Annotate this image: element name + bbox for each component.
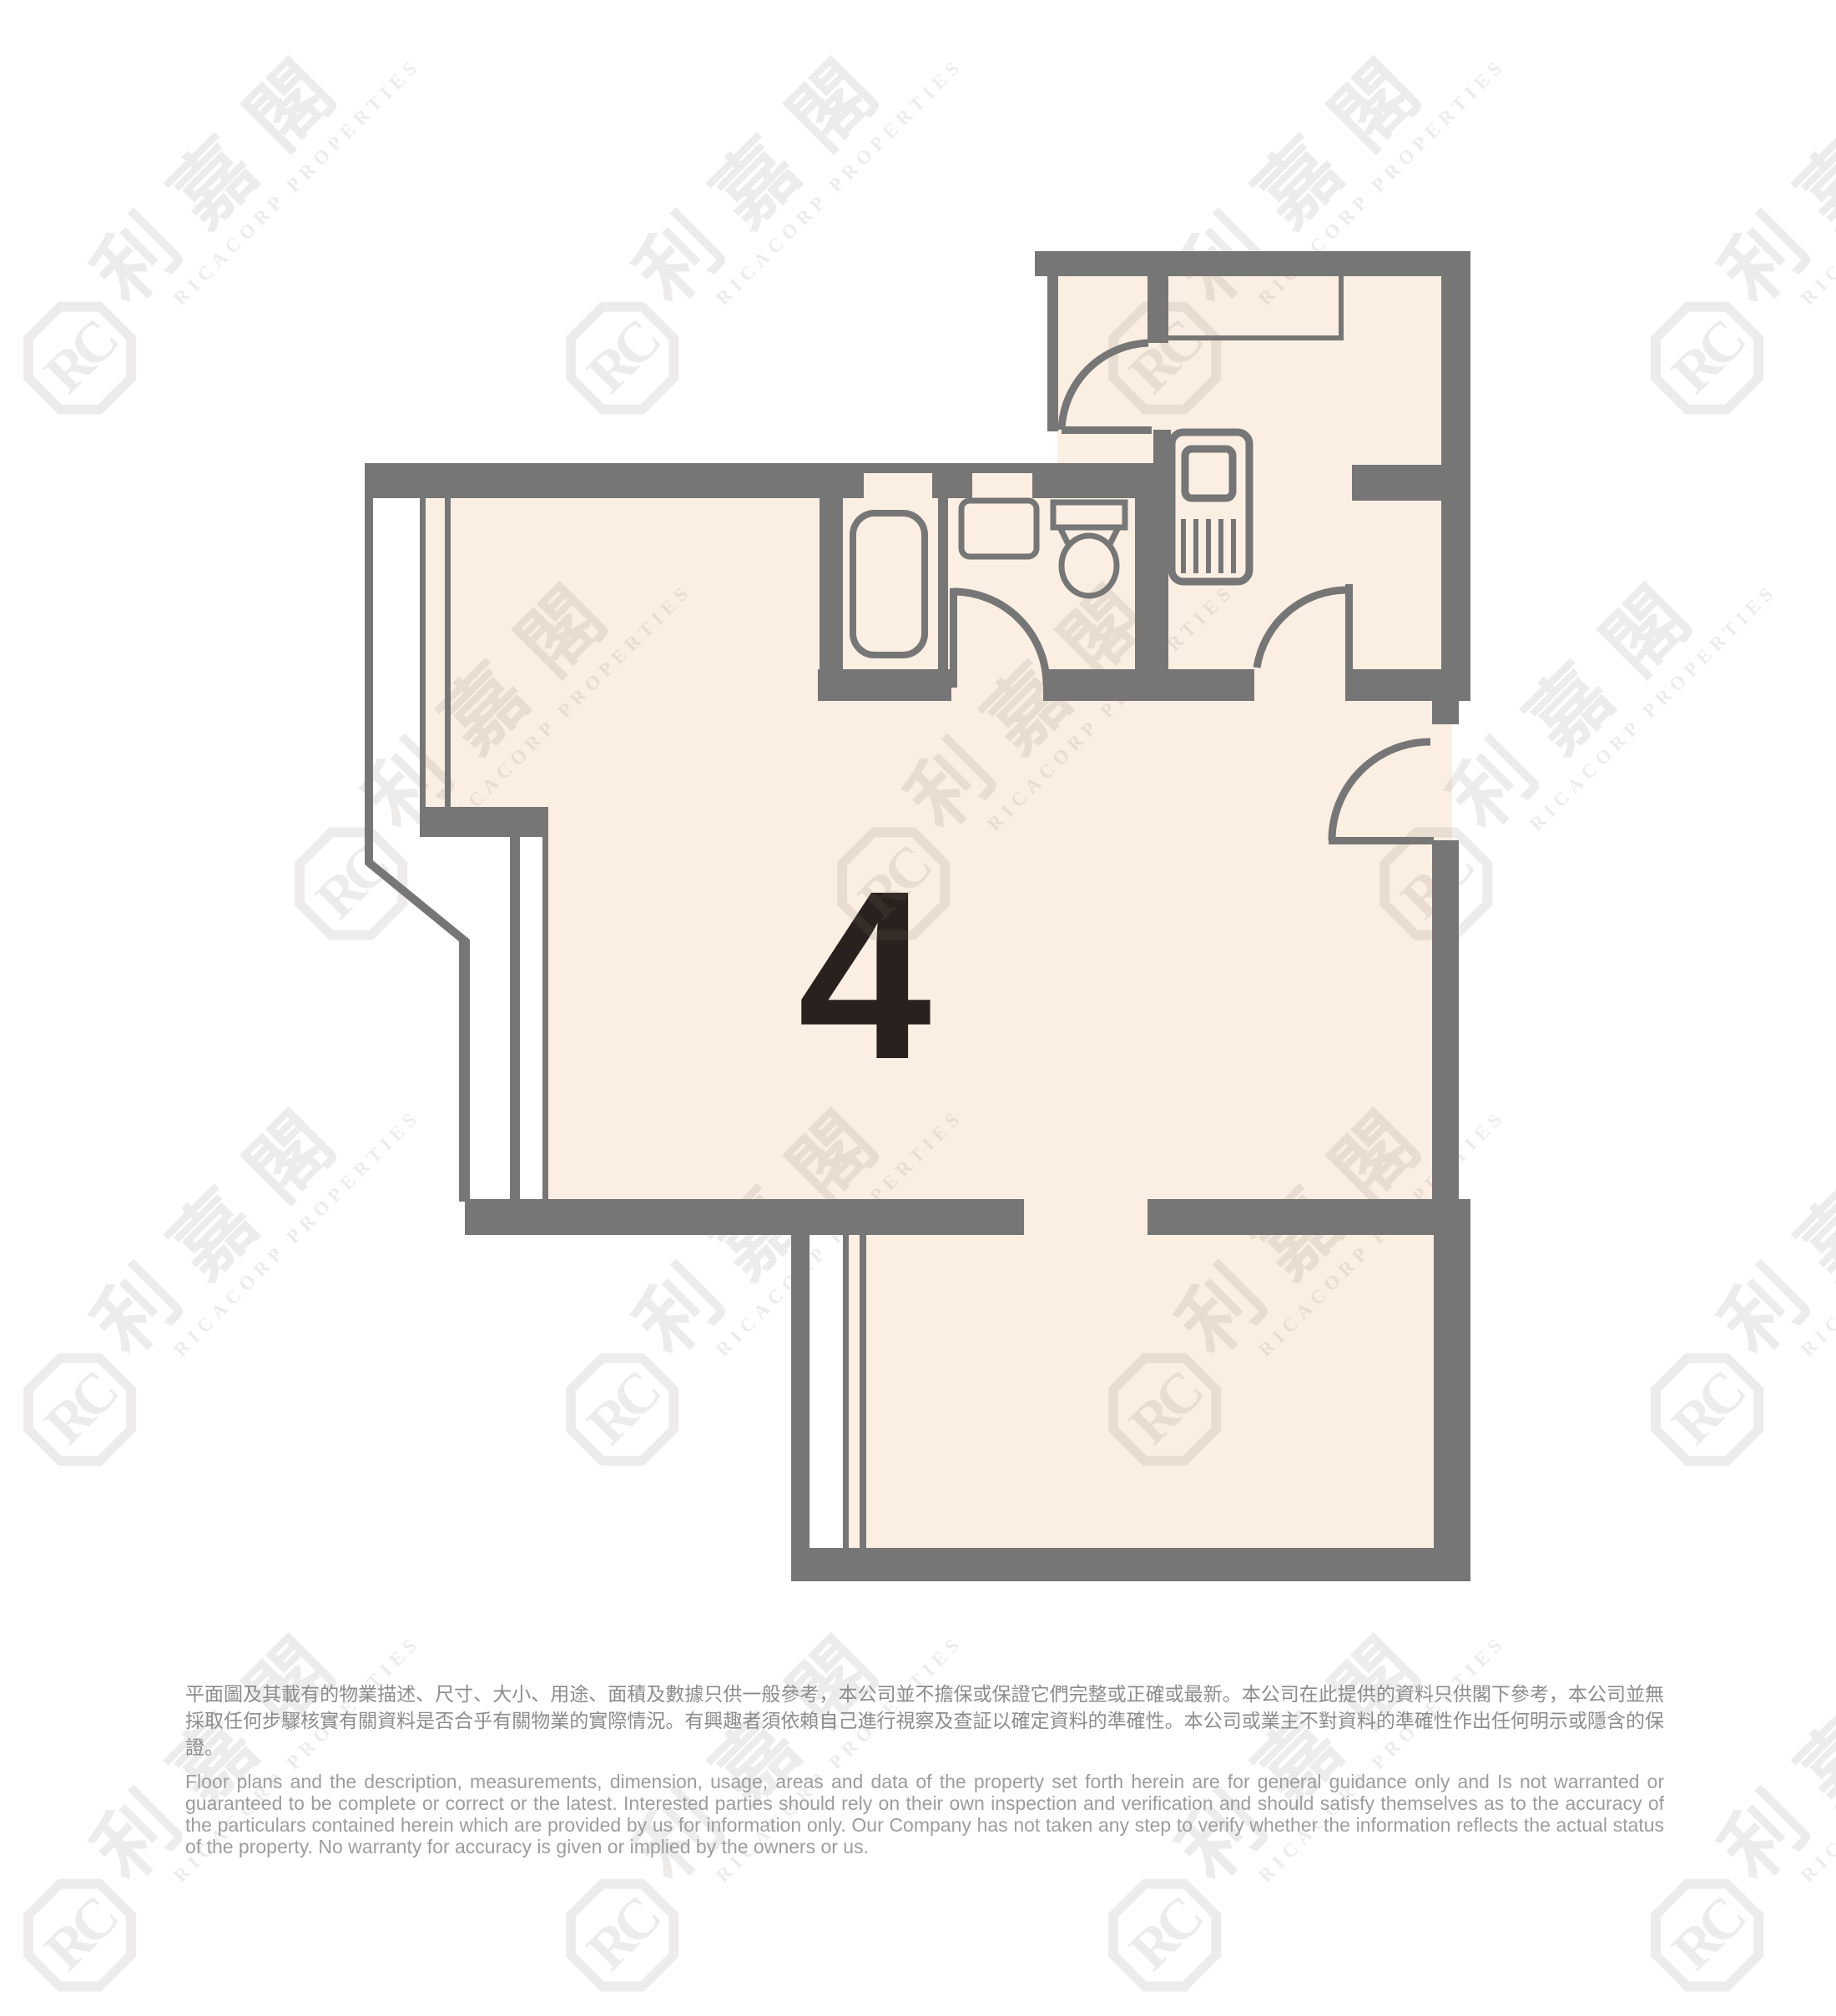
ricacorp-logo-icon: RC <box>1087 1857 1243 2013</box>
wall-lowerroom-bottom <box>791 1548 1470 1581</box>
watermark-logo: RC <box>1629 1857 1788 2016</box>
disclaimer-text-en: Floor plans and the description, measure… <box>185 1771 1664 1857</box>
watermark-logo: RC <box>2 1857 160 2016</box>
ricacorp-logo-icon: RC <box>2 1857 158 2013</box>
wall-left-slit-wall-b <box>542 837 548 1199</box>
wall-left-outer-thin <box>365 490 373 864</box>
wall-diagonal <box>367 861 467 943</box>
floor-plan-page: 4 RC利嘉閣RICACORP PROPERTIESRC利嘉閣RICACORP … <box>0 0 1836 1836</box>
wall-right-wall-mid <box>1432 840 1459 1200</box>
bath-window-notch-1 <box>864 473 932 498</box>
toilet-bowl-icon <box>1062 536 1117 596</box>
wall-window-line-outer <box>420 490 426 807</box>
ricacorp-logo-icon: RC <box>544 1857 700 2013</box>
watermark-logo: RC <box>544 1857 703 2016</box>
disclaimer: 平面圖及其載有的物業描述、尺寸、大小、用途、面積及數據只供一般參考，本公司並不擔… <box>185 1681 1664 1857</box>
wall-right-wall-lower <box>1434 1200 1470 1581</box>
svg-text:RC: RC <box>33 1886 129 1982</box>
wall-top-band <box>365 463 1171 498</box>
wall-living-bottom-left <box>465 1199 1024 1235</box>
wall-left-slit-wall-a <box>510 837 520 1199</box>
svg-text:RC: RC <box>1117 1886 1213 1982</box>
svg-text:RC: RC <box>1660 1886 1756 1982</box>
kitchen-counter <box>1168 276 1341 338</box>
wall-left-lower-wall <box>459 940 470 1202</box>
room-living-upper <box>420 476 1452 837</box>
bathroom-door-leaf <box>950 588 957 688</box>
disclaimer-text-zh: 平面圖及其載有的物業描述、尺寸、大小、用途、面積及數據只供一般參考，本公司並不擔… <box>185 1681 1664 1761</box>
wall-right-top-stub <box>1352 465 1441 501</box>
toilet-tank-icon <box>1053 502 1125 527</box>
wall-bath-bottom-right <box>1043 669 1254 701</box>
balcony-door-leaf <box>1329 837 1434 844</box>
floor-plan: 4 <box>0 0 1836 1836</box>
wall-left-mid-band <box>420 807 548 837</box>
wall-kitchen-top <box>1035 251 1470 276</box>
wall-tub-partition <box>938 498 948 672</box>
unit-number-label: 4 <box>798 841 933 1110</box>
wall-living-bottom-right <box>1147 1199 1470 1235</box>
wall-right-wall-upper <box>1441 251 1470 691</box>
wall-window-line-inner <box>445 490 451 807</box>
svg-text:RC: RC <box>575 1886 671 1982</box>
water-heater-panel-icon <box>1185 449 1233 498</box>
wall-lowerroom-window-b <box>860 1235 866 1548</box>
wall-lowerroom-left-thick <box>791 1235 810 1556</box>
wall-kitchen-door-stub <box>1147 276 1168 343</box>
sink-icon <box>961 501 1037 557</box>
watermark-logo: RC <box>1087 1857 1245 2016</box>
wall-kitchen-left <box>1047 251 1058 431</box>
room-living-lower <box>548 837 1452 1202</box>
bath-window-notch-2 <box>972 473 1032 498</box>
kitchen-door-leaf <box>1062 426 1152 434</box>
bathtub-icon <box>853 513 925 655</box>
wall-bath-bottom-left <box>818 669 951 701</box>
bedroom-door-leaf <box>1345 584 1353 684</box>
wall-right-stub-mid <box>1432 691 1459 724</box>
ricacorp-logo-icon: RC <box>1629 1857 1785 2013</box>
room-lower-room <box>849 1200 1452 1581</box>
wall-lowerroom-window-a <box>843 1235 849 1548</box>
